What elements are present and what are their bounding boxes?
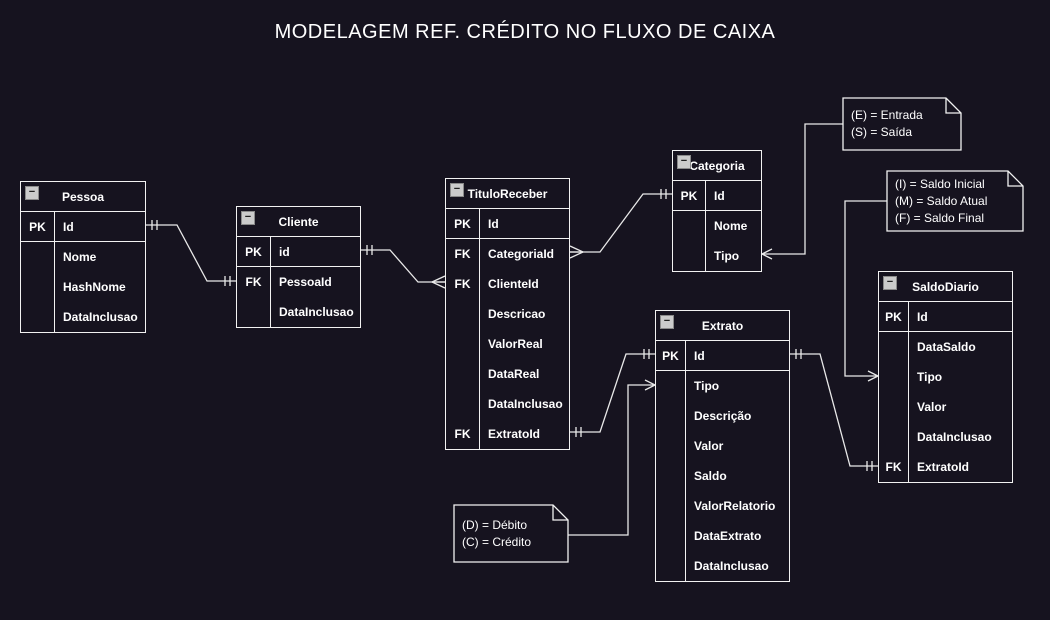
note-line: (F) = Saldo Final: [895, 210, 987, 227]
collapse-icon[interactable]: −: [660, 315, 674, 329]
arrowhead-note-entrada-categoria: [762, 249, 772, 254]
key-badge: [446, 389, 480, 419]
key-badge: PK: [237, 237, 271, 266]
entity-categoria[interactable]: −CategoriaPKIdNomeTipo: [672, 150, 762, 272]
edge-note-entrada-categoria[interactable]: [762, 124, 843, 254]
entity-header: −SaldoDiario: [879, 272, 1012, 302]
edge-note-debito-extrato[interactable]: [568, 385, 655, 535]
field-row-datainclusao[interactable]: DataInclusao: [21, 302, 145, 332]
key-badge: PK: [673, 181, 706, 210]
entity-title: Extrato: [698, 319, 747, 333]
field-name: ValorRelatorio: [686, 491, 775, 521]
key-badge: [656, 491, 686, 521]
key-badge: [21, 302, 55, 332]
edge-pessoa-cliente[interactable]: [146, 225, 236, 281]
field-row-hashnome[interactable]: HashNome: [21, 272, 145, 302]
key-badge: FK: [446, 269, 480, 299]
entity-header: −Categoria: [673, 151, 761, 181]
cardinality-many-foot-cliente-tituloreceber: [432, 276, 445, 282]
note-line: (D) = Débito: [462, 517, 531, 534]
arrowhead-note-saldo-saldodiario: [868, 371, 878, 376]
key-badge: [21, 242, 55, 272]
field-name: Tipo: [909, 362, 942, 392]
field-name: PessoaId: [271, 267, 332, 297]
collapse-icon[interactable]: −: [883, 276, 897, 290]
key-badge: PK: [879, 302, 909, 331]
entity-saldodiario[interactable]: −SaldoDiarioPKIdDataSaldoTipoValorDataIn…: [878, 271, 1013, 483]
field-name: Id: [55, 212, 74, 241]
field-row-descricao[interactable]: Descricao: [446, 299, 569, 329]
field-row-id[interactable]: PKId: [879, 302, 1012, 332]
field-row-extratoid[interactable]: FKExtratoId: [446, 419, 569, 449]
field-name: ExtratoId: [909, 452, 969, 482]
field-name: Saldo: [686, 461, 727, 491]
key-badge: [656, 521, 686, 551]
field-name: Tipo: [706, 241, 739, 271]
entity-header: −TituloReceber: [446, 179, 569, 209]
key-badge: [656, 371, 686, 401]
cardinality-many-foot-tituloreceber-categoria: [570, 246, 583, 252]
field-row-id[interactable]: PKId: [21, 212, 145, 242]
key-badge: [446, 299, 480, 329]
field-name: Valor: [909, 392, 946, 422]
note-line: (I) = Saldo Inicial: [895, 176, 987, 193]
key-badge: FK: [446, 239, 480, 269]
key-badge: PK: [21, 212, 55, 241]
key-badge: [879, 362, 909, 392]
edge-extrato-saldodiario[interactable]: [790, 354, 878, 466]
field-name: ClienteId: [480, 269, 539, 299]
key-badge: [879, 422, 909, 452]
field-row-valorreal[interactable]: ValorReal: [446, 329, 569, 359]
field-name: Descrição: [686, 401, 751, 431]
note-debito-credito[interactable]: (D) = Débito(C) = Crédito: [462, 517, 531, 551]
field-row-clienteid[interactable]: FKClienteId: [446, 269, 569, 299]
field-name: Id: [706, 181, 725, 210]
field-name: HashNome: [55, 272, 126, 302]
field-row-id[interactable]: PKid: [237, 237, 360, 267]
field-name: DataInclusao: [909, 422, 992, 452]
key-badge: FK: [237, 267, 271, 297]
entity-title: SaldoDiario: [908, 280, 983, 294]
field-row-valorrelatorio[interactable]: ValorRelatorio: [656, 491, 789, 521]
entity-title: Cliente: [274, 215, 322, 229]
key-badge: [446, 329, 480, 359]
field-row-datasaldo[interactable]: DataSaldo: [879, 332, 1012, 362]
note-line: (M) = Saldo Atual: [895, 193, 987, 210]
field-name: Id: [909, 302, 928, 331]
field-row-datareal[interactable]: DataReal: [446, 359, 569, 389]
key-badge: [21, 272, 55, 302]
field-row-categoriaid[interactable]: FKCategoriaId: [446, 239, 569, 269]
field-row-datainclusao[interactable]: DataInclusao: [879, 422, 1012, 452]
field-name: Valor: [686, 431, 723, 461]
field-name: Descricao: [480, 299, 545, 329]
er-diagram-canvas: MODELAGEM REF. CRÉDITO NO FLUXO DE CAIXA…: [0, 0, 1050, 620]
collapse-icon[interactable]: −: [450, 183, 464, 197]
key-badge: [879, 392, 909, 422]
arrowhead-note-saldo-saldodiario: [868, 376, 878, 381]
field-name: DataReal: [480, 359, 539, 389]
field-name: Tipo: [686, 371, 719, 401]
field-row-valor[interactable]: Valor: [879, 392, 1012, 422]
field-name: DataInclusao: [271, 297, 354, 327]
arrowhead-note-debito-extrato: [645, 380, 655, 385]
field-row-pessoaid[interactable]: FKPessoaId: [237, 267, 360, 297]
field-name: DataInclusao: [480, 389, 563, 419]
note-entrada-saida[interactable]: (E) = Entrada(S) = Saída: [851, 107, 923, 141]
arrowhead-note-debito-extrato: [645, 385, 655, 390]
cardinality-many-foot-cliente-tituloreceber: [432, 282, 445, 288]
field-name: DataInclusao: [55, 302, 138, 332]
key-badge: FK: [446, 419, 480, 449]
field-name: Nome: [706, 211, 747, 241]
key-badge: [237, 297, 271, 327]
field-row-nome[interactable]: Nome: [673, 211, 761, 241]
field-name: Id: [480, 209, 499, 238]
field-name: DataSaldo: [909, 332, 976, 362]
entity-title: Categoria: [685, 159, 748, 173]
key-badge: [446, 359, 480, 389]
collapse-icon[interactable]: −: [25, 186, 39, 200]
field-row-descrição[interactable]: Descrição: [656, 401, 789, 431]
field-row-datainclusao[interactable]: DataInclusao: [446, 389, 569, 419]
field-row-id[interactable]: PKId: [656, 341, 789, 371]
collapse-icon[interactable]: −: [677, 155, 691, 169]
key-badge: [673, 211, 706, 241]
field-row-tipo[interactable]: Tipo: [879, 362, 1012, 392]
key-badge: PK: [656, 341, 686, 370]
field-name: DataExtrato: [686, 521, 761, 551]
entity-title: TituloReceber: [464, 187, 552, 201]
entity-title: Pessoa: [58, 190, 108, 204]
entity-cliente[interactable]: −ClientePKidFKPessoaIdDataInclusao: [236, 206, 361, 328]
key-badge: PK: [446, 209, 480, 238]
entity-header: −Pessoa: [21, 182, 145, 212]
field-row-dataextrato[interactable]: DataExtrato: [656, 521, 789, 551]
key-badge: [656, 401, 686, 431]
field-name: id: [271, 237, 290, 266]
field-name: CategoriaId: [480, 239, 554, 269]
entity-pessoa[interactable]: −PessoaPKIdNomeHashNomeDataInclusao: [20, 181, 146, 333]
key-badge: [656, 431, 686, 461]
note-saldo-legend[interactable]: (I) = Saldo Inicial(M) = Saldo Atual(F) …: [895, 176, 987, 227]
field-name: Nome: [55, 242, 96, 272]
field-row-nome[interactable]: Nome: [21, 242, 145, 272]
field-row-tipo[interactable]: Tipo: [673, 241, 761, 271]
arrowhead-note-entrada-categoria: [762, 254, 772, 259]
entity-header: −Cliente: [237, 207, 360, 237]
field-row-datainclusao[interactable]: DataInclusao: [656, 551, 789, 581]
key-badge: [673, 241, 706, 271]
key-badge: [656, 461, 686, 491]
field-row-datainclusao[interactable]: DataInclusao: [237, 297, 360, 327]
key-badge: [656, 551, 686, 581]
field-row-extratoid[interactable]: FKExtratoId: [879, 452, 1012, 482]
key-badge: [879, 332, 909, 362]
field-name: DataInclusao: [686, 551, 769, 581]
field-name: ExtratoId: [480, 419, 540, 449]
cardinality-many-foot-tituloreceber-categoria: [570, 252, 583, 258]
field-row-saldo[interactable]: Saldo: [656, 461, 789, 491]
key-badge: FK: [879, 452, 909, 482]
edge-cliente-tituloreceber[interactable]: [361, 250, 445, 282]
note-line: (S) = Saída: [851, 124, 923, 141]
note-line: (C) = Crédito: [462, 534, 531, 551]
collapse-icon[interactable]: −: [241, 211, 255, 225]
edge-tituloreceber-extrato[interactable]: [570, 354, 655, 432]
field-name: ValorReal: [480, 329, 543, 359]
entity-header: −Extrato: [656, 311, 789, 341]
entity-tituloreceber[interactable]: −TituloReceberPKIdFKCategoriaIdFKCliente…: [445, 178, 570, 450]
edge-tituloreceber-categoria[interactable]: [570, 194, 672, 252]
entity-extrato[interactable]: −ExtratoPKIdTipoDescriçãoValorSaldoValor…: [655, 310, 790, 582]
note-line: (E) = Entrada: [851, 107, 923, 124]
field-name: Id: [686, 341, 705, 370]
field-row-tipo[interactable]: Tipo: [656, 371, 789, 401]
field-row-id[interactable]: PKId: [446, 209, 569, 239]
field-row-valor[interactable]: Valor: [656, 431, 789, 461]
field-row-id[interactable]: PKId: [673, 181, 761, 211]
